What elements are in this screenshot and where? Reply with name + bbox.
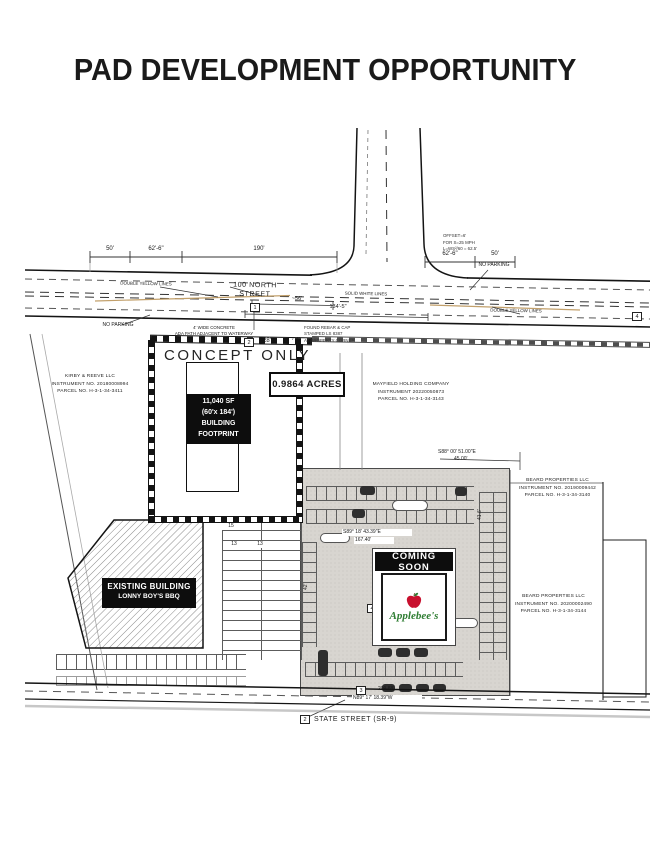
offset-note-line2: FOR S=25 MPH <box>443 240 533 247</box>
keynote-number: 2 <box>247 340 250 346</box>
dim-50-right: 50' <box>477 251 513 259</box>
keynote-marker: 1 <box>250 303 260 312</box>
keynote-number: 4 <box>635 314 638 320</box>
bearing-s89-dist: 167.40' <box>354 537 394 544</box>
parcel-label-beard-south: BEARD PROPERTIES LLC INSTRUMENT NO. 2020… <box>496 593 611 616</box>
north-street-label: 100 NORTH STREET <box>218 280 292 299</box>
pad-parcel-border-west <box>148 340 155 520</box>
site-plan-canvas: PAD DEVELOPMENT OPPORTUNITY OFFSET=6' FO… <box>0 0 650 841</box>
no-parking-label-left: NO PARKING <box>96 322 140 329</box>
acreage-label: 0.9864 ACRES <box>269 372 345 397</box>
acreage-text: 0.9864 ACRES <box>272 379 341 390</box>
footprint-line4: FOOTPRINT <box>186 430 251 441</box>
owner-name: BEARD PROPERTIES LLC <box>496 593 611 601</box>
bearing-s89: S89° 18' 43.39"E <box>342 529 412 536</box>
coming-soon-text: COMING SOON <box>375 551 453 573</box>
stall-count: 13 <box>252 541 268 548</box>
footprint-line3: BUILDING <box>186 419 251 430</box>
rotated-dim-41: 41.6' <box>477 490 484 520</box>
owner-name: KIRBY & REEVE LLC <box>36 373 144 381</box>
solid-white-label: SOLID WHITE LINES <box>336 290 396 297</box>
bearing-n89-dist: 209.88' <box>378 686 418 693</box>
offset-note-line1: OFFSET=6' <box>443 233 533 240</box>
parcel-no: PARCEL NO. H-3-1-34-3144 <box>496 608 611 616</box>
no-parking-label-right: NO PARKING <box>472 262 516 269</box>
page-title-text: PAD DEVELOPMENT OPPORTUNITY <box>74 52 576 88</box>
instrument-no: INSTRUMENT NO. 20180008994 <box>36 381 144 389</box>
dim-134: 134'-5" <box>318 304 358 311</box>
applebees-apple-icon <box>404 592 424 609</box>
dim-190: 190' <box>239 246 279 254</box>
existing-building-label: EXISTING BUILDING LONNY BOY'S BBQ <box>102 578 196 608</box>
ada-path-label-line2: ADA PATH ADJACENT TO WATERWAY <box>168 331 260 337</box>
rotated-dim-42: 42' <box>303 560 310 590</box>
double-yellow-label-left: DOUBLE YELLOW LINES <box>112 280 180 288</box>
page-title: PAD DEVELOPMENT OPPORTUNITY <box>0 52 650 88</box>
footprint-line2: (60'x 184') <box>186 408 251 419</box>
owner-name: BEARD PROPERTIES LLC <box>500 477 615 485</box>
dim-7-6: 7'-6" <box>284 336 308 342</box>
parcel-label-kirby: KIRBY & REEVE LLC INSTRUMENT NO. 2018000… <box>36 373 144 396</box>
pad-parcel-border-east <box>296 344 303 522</box>
parcel-no: PARCEL NO. H-3-1-34-3143 <box>356 396 466 404</box>
instrument-no: INSTRUMENT 20220050873 <box>356 389 466 397</box>
bearing-s88-dist: 45.00' <box>454 456 494 463</box>
keynote-marker: 2 <box>300 715 310 724</box>
bearing-n89: N89° 17' 18.39"W <box>352 695 422 702</box>
pad-parcel-border-south <box>148 516 303 523</box>
parcel-label-beard-north: BEARD PROPERTIES LLC INSTRUMENT NO. 2019… <box>500 477 615 500</box>
dim-62-right: 62'-6" <box>430 251 470 259</box>
owner-name: MAYFIELD HOLDING COMPANY <box>356 381 466 389</box>
parcel-no: PARCEL NO. H-3-1-34-3411 <box>36 388 144 396</box>
building-footprint-label: 11,040 SF (60'x 184') BUILDING FOOTPRINT <box>186 394 251 444</box>
offset-note: OFFSET=6' FOR S=25 MPH L=WS²/60 = 62.5' <box>443 233 533 253</box>
existing-line2: LONNY BOY'S BBQ <box>102 593 196 600</box>
keynote-number: 3 <box>359 688 362 694</box>
north-street-linework <box>25 270 650 327</box>
bearing-s88: S88° 00' 51.00"E <box>438 449 508 456</box>
found-rebar-line3: AT PROPERTY CORNER <box>304 338 362 344</box>
keynote-number: 1 <box>253 305 256 311</box>
keynote-marker: 2 <box>244 338 254 347</box>
dim-28: 28' <box>256 338 278 346</box>
keynote-marker: 3 <box>356 686 366 695</box>
parcel-no: PARCEL NO. H-3-1-34-3140 <box>500 492 615 500</box>
keynote-number: 2 <box>303 717 306 723</box>
found-rebar-note: FOUND REBAR & CAP STAMPED LS 8387 AT PRO… <box>304 325 362 344</box>
double-yellow-label-right: DOUBLE YELLOW LINES <box>482 307 550 315</box>
footprint-line1: 11,040 SF <box>186 397 251 408</box>
existing-line1: EXISTING BUILDING <box>102 582 196 591</box>
coming-soon-banner: COMING SOON <box>375 552 453 571</box>
dim-56: ~56' <box>283 296 311 303</box>
dim-62-left: 62'-6" <box>136 246 176 254</box>
state-street-linework <box>25 683 650 717</box>
parcel-label-mayfield: MAYFIELD HOLDING COMPANY INSTRUMENT 2022… <box>356 381 466 404</box>
state-street-label: STATE STREET (SR-9) <box>314 715 404 724</box>
instrument-no: INSTRUMENT NO. 20190009442 <box>500 485 615 493</box>
applebees-building: Applebee's <box>381 573 447 641</box>
keynote-marker: 4 <box>632 312 642 321</box>
dim-50-left: 50' <box>92 246 128 254</box>
stall-count: 15 <box>222 523 240 530</box>
stall-count: 13 <box>226 541 242 548</box>
instrument-no: INSTRUMENT NO. 20200002490 <box>496 601 611 609</box>
applebees-logo-text: Applebee's <box>390 611 439 622</box>
